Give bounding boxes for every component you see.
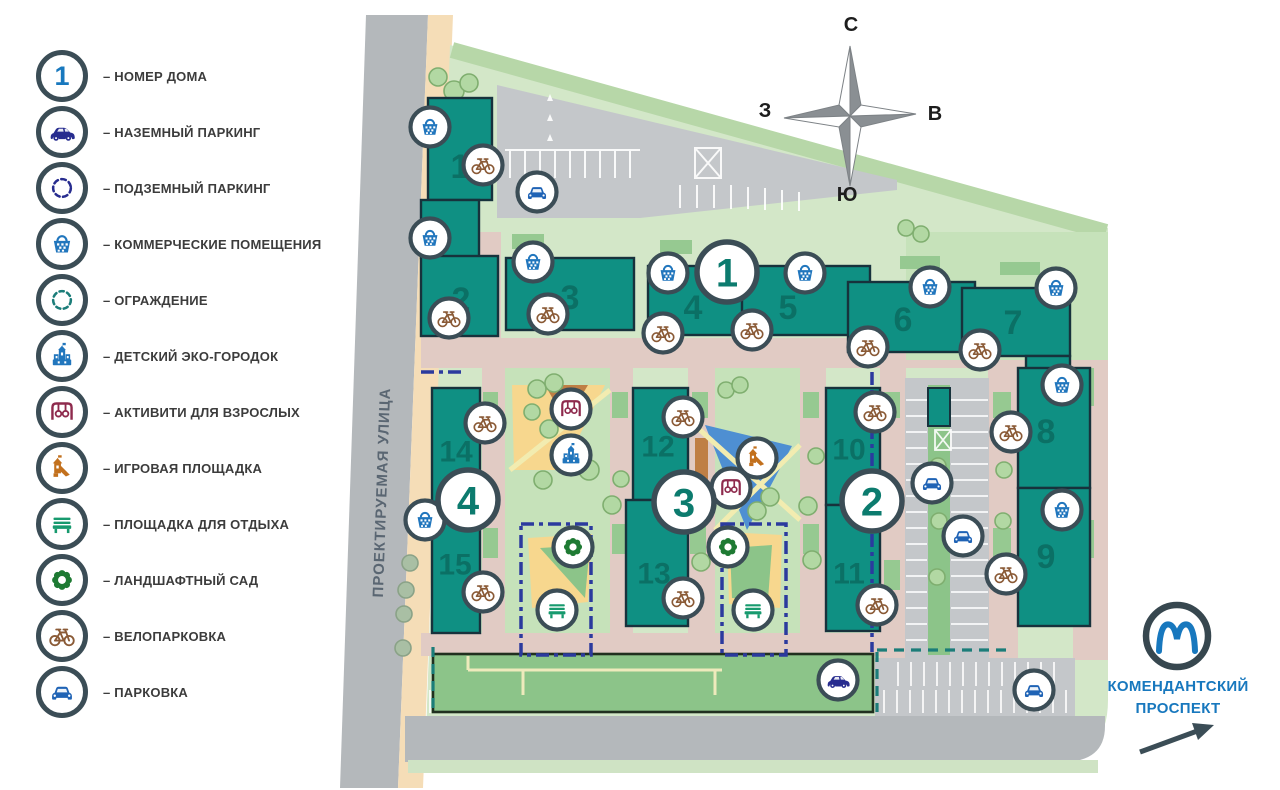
activity-icon xyxy=(36,386,88,438)
legend-item-label: – КОММЕРЧЕСКИЕ ПОМЕЩЕНИЯ xyxy=(103,237,321,252)
building-number-10: 10 xyxy=(832,434,865,467)
legend-item-label: – ПОДЗЕМНЫЙ ПАРКИНГ xyxy=(103,181,271,196)
commercial-marker xyxy=(1043,491,1082,530)
legend-item-label: – ДЕТСКИЙ ЭКО-ГОРОДОК xyxy=(103,349,278,364)
car-front-icon xyxy=(36,666,88,718)
car-front-marker xyxy=(518,173,557,212)
site-plan: 1– НОМЕР ДОМА– НАЗЕМНЫЙ ПАРКИНГ– ПОДЗЕМН… xyxy=(0,0,1280,790)
bench-marker xyxy=(734,591,773,630)
legend-item: – ПАРКОВКА xyxy=(36,666,321,718)
building-number-6: 6 xyxy=(894,301,913,339)
svg-text:3: 3 xyxy=(673,481,695,525)
legend-item: – ДЕТСКИЙ ЭКО-ГОРОДОК xyxy=(36,330,321,382)
legend-item-label: – ОГРАЖДЕНИЕ xyxy=(103,293,208,308)
legend-item-label: – ИГРОВАЯ ПЛОЩАДКА xyxy=(103,461,262,476)
bike-marker xyxy=(529,295,568,334)
car-front-marker xyxy=(913,464,952,503)
compass-west: З xyxy=(750,100,780,123)
legend-item: – ИГРОВАЯ ПЛОЩАДКА xyxy=(36,442,321,494)
commercial-marker xyxy=(649,254,688,293)
legend-item-label: – ЛАНДШАФТНЫЙ САД xyxy=(103,573,258,588)
car-side-icon xyxy=(36,106,88,158)
direction-arrow xyxy=(1140,723,1214,752)
bike-marker xyxy=(961,331,1000,370)
metro-label-line2: ПРОСПЕКТ xyxy=(1092,698,1264,720)
bike-marker xyxy=(430,299,469,338)
bike-marker xyxy=(466,404,505,443)
building-number-4: 4 xyxy=(684,289,703,327)
bench-icon xyxy=(36,498,88,550)
bike-marker xyxy=(733,311,772,350)
underground-icon xyxy=(36,162,88,214)
compass-east: В xyxy=(920,103,950,126)
svg-text:2: 2 xyxy=(861,480,883,524)
bench-marker xyxy=(538,591,577,630)
legend-item-label: – ВЕЛОПАРКОВКА xyxy=(103,629,226,644)
building-number-14: 14 xyxy=(439,436,473,469)
phase-marker-1: 1 xyxy=(697,242,757,302)
ground-parking-building xyxy=(433,654,873,712)
bike-marker xyxy=(992,413,1031,452)
commercial-marker xyxy=(411,108,450,147)
eco-town-icon xyxy=(36,330,88,382)
building-number-12: 12 xyxy=(641,431,674,464)
legend-item-label: – АКТИВИТИ ДЛЯ ВЗРОСЛЫХ xyxy=(103,405,300,420)
commercial-marker xyxy=(911,268,950,307)
building-number-11: 11 xyxy=(833,558,865,591)
metro-station-label: КОМЕНДАНТСКИЙ ПРОСПЕКТ xyxy=(1092,676,1264,720)
bike-marker xyxy=(856,393,895,432)
legend-item: – ПЛОЩАДКА ДЛЯ ОТДЫХА xyxy=(36,498,321,550)
bike-marker xyxy=(644,314,683,353)
metro-logo xyxy=(1146,605,1208,667)
bike-marker xyxy=(664,398,703,437)
svg-text:1: 1 xyxy=(716,251,738,295)
car-side-marker xyxy=(819,661,858,700)
legend-item-label: – НОМЕР ДОМА xyxy=(103,69,207,84)
eco-town-marker xyxy=(552,436,591,475)
phase-marker-3: 3 xyxy=(654,472,714,532)
garden-marker xyxy=(554,528,593,567)
commercial-marker xyxy=(1043,366,1082,405)
legend-item: 1– НОМЕР ДОМА xyxy=(36,50,321,102)
legend: 1– НОМЕР ДОМА– НАЗЕМНЫЙ ПАРКИНГ– ПОДЗЕМН… xyxy=(36,50,321,718)
phase-marker-2: 2 xyxy=(842,471,902,531)
metro-label-line1: КОМЕНДАНТСКИЙ xyxy=(1092,676,1264,698)
commercial-marker xyxy=(411,219,450,258)
building-number-9: 9 xyxy=(1037,538,1056,576)
playground-icon xyxy=(36,442,88,494)
legend-item-label: – ПАРКОВКА xyxy=(103,685,188,700)
building-number-7: 7 xyxy=(1004,304,1023,342)
map-canvas: 123456789101112131415 1234 xyxy=(330,10,1280,790)
legend-item-label: – НАЗЕМНЫЙ ПАРКИНГ xyxy=(103,125,260,140)
activity-marker xyxy=(552,390,591,429)
commercial-marker xyxy=(1037,269,1076,308)
bike-marker xyxy=(858,586,897,625)
legend-item: – НАЗЕМНЫЙ ПАРКИНГ xyxy=(36,106,321,158)
building-number-15: 15 xyxy=(438,549,471,582)
house-number-icon: 1 xyxy=(36,50,88,102)
legend-item: – ВЕЛОПАРКОВКА xyxy=(36,610,321,662)
svg-text:4: 4 xyxy=(457,479,480,523)
car-front-marker xyxy=(944,517,983,556)
compass-south: Ю xyxy=(832,184,862,207)
building-number-5: 5 xyxy=(779,289,798,327)
legend-item-label: – ПЛОЩАДКА ДЛЯ ОТДЫХА xyxy=(103,517,289,532)
bike-marker xyxy=(464,146,503,185)
commercial-icon xyxy=(36,218,88,270)
bike-marker xyxy=(849,328,888,367)
legend-item: – ПОДЗЕМНЫЙ ПАРКИНГ xyxy=(36,162,321,214)
bike-icon xyxy=(36,610,88,662)
bike-marker xyxy=(987,555,1026,594)
commercial-marker xyxy=(786,254,825,293)
car-front-marker xyxy=(1015,671,1054,710)
legend-item: – ЛАНДШАФТНЫЙ САД xyxy=(36,554,321,606)
legend-item: – ОГРАЖДЕНИЕ xyxy=(36,274,321,326)
garden-icon xyxy=(36,554,88,606)
fence-icon xyxy=(36,274,88,326)
commercial-marker xyxy=(514,243,553,282)
bike-marker xyxy=(464,573,503,612)
building-number-8: 8 xyxy=(1037,413,1056,451)
legend-item: – АКТИВИТИ ДЛЯ ВЗРОСЛЫХ xyxy=(36,386,321,438)
bike-marker xyxy=(664,579,703,618)
compass-north: С xyxy=(836,14,866,37)
legend-item: – КОММЕРЧЕСКИЕ ПОМЕЩЕНИЯ xyxy=(36,218,321,270)
house-number-glyph: 1 xyxy=(54,63,69,90)
playground-marker xyxy=(738,439,777,478)
garden-marker xyxy=(709,528,748,567)
phase-marker-4: 4 xyxy=(438,470,498,530)
